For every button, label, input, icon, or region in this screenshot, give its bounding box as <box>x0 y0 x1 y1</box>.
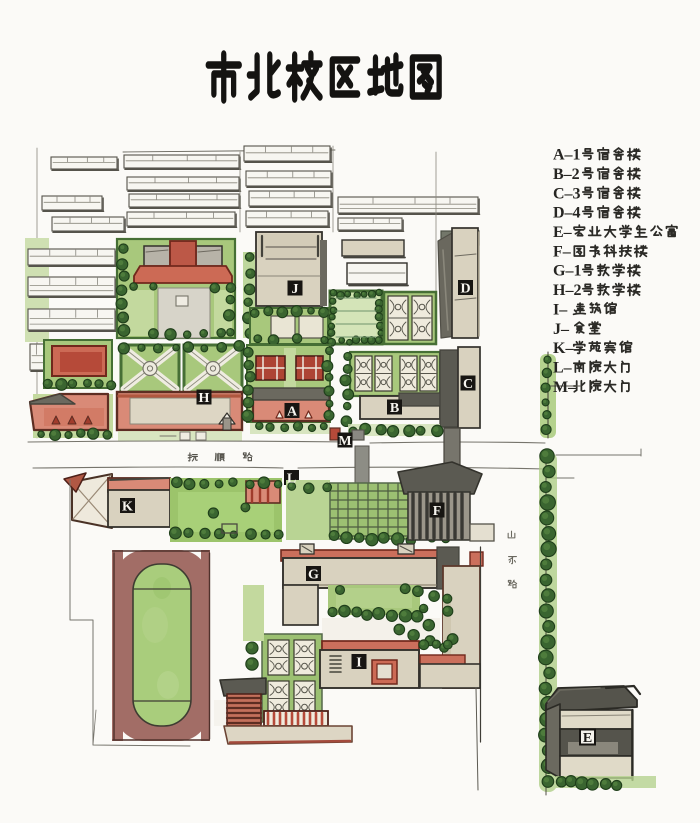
svg-text:C–3: C–3 <box>553 185 581 202</box>
svg-text:I: I <box>356 655 361 670</box>
svg-text:L: L <box>287 471 296 486</box>
svg-text:F: F <box>433 504 442 519</box>
svg-text:C: C <box>463 377 473 392</box>
svg-text:B–2: B–2 <box>553 166 580 183</box>
svg-text:E–: E– <box>553 224 573 241</box>
svg-text:D–4: D–4 <box>553 205 581 222</box>
svg-text:G–1: G–1 <box>553 263 581 280</box>
svg-text:K–: K– <box>553 340 574 357</box>
svg-text:F–: F– <box>553 243 572 260</box>
svg-text:J: J <box>292 282 299 297</box>
svg-text:H–2: H–2 <box>553 282 581 299</box>
svg-text:D: D <box>460 281 470 296</box>
svg-text:A–1: A–1 <box>553 147 581 164</box>
svg-text:J–: J– <box>553 321 570 338</box>
svg-text:M–: M– <box>553 379 577 396</box>
svg-text:K: K <box>122 499 133 514</box>
svg-text:A: A <box>287 404 298 419</box>
svg-text:B: B <box>390 401 399 416</box>
svg-text:I–: I– <box>553 301 568 318</box>
svg-text:H: H <box>199 391 210 406</box>
svg-text:L–: L– <box>553 359 573 376</box>
svg-text:G: G <box>308 567 319 582</box>
svg-text:E: E <box>583 731 592 746</box>
svg-text:M: M <box>338 434 351 449</box>
